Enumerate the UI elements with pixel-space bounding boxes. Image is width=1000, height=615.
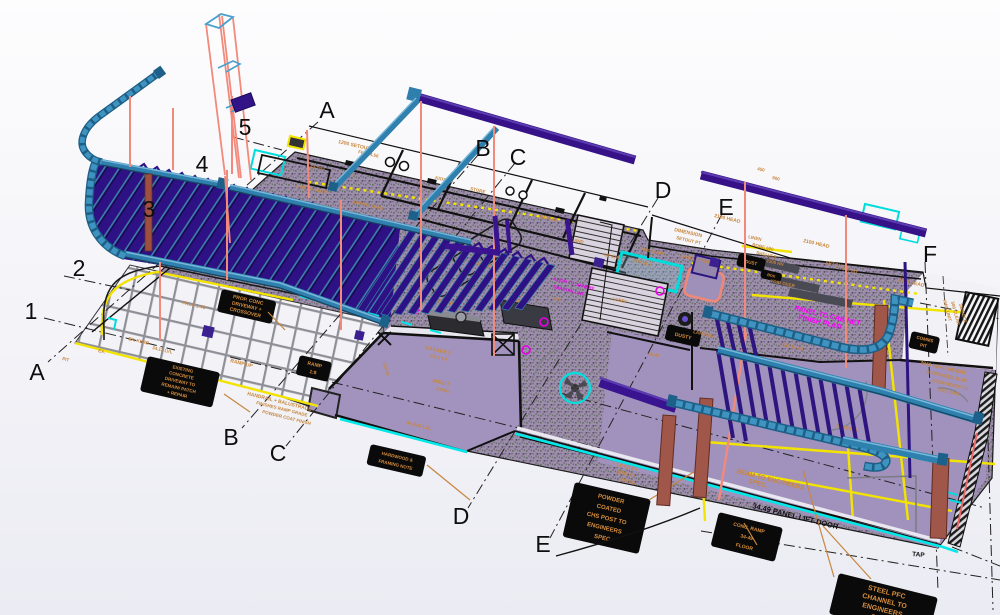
svg-text:3: 3 xyxy=(143,196,156,222)
svg-text:D: D xyxy=(453,503,470,529)
svg-text:TAP: TAP xyxy=(912,551,926,559)
svg-text:B: B xyxy=(475,135,490,161)
svg-text:A: A xyxy=(29,359,45,385)
svg-text:2: 2 xyxy=(73,255,86,281)
svg-text:E: E xyxy=(535,531,550,557)
svg-text:4: 4 xyxy=(196,151,209,177)
svg-text:C: C xyxy=(510,144,527,170)
svg-text:A: A xyxy=(319,97,335,123)
svg-text:B: B xyxy=(223,424,238,450)
svg-text:C: C xyxy=(270,440,287,466)
svg-text:F: F xyxy=(923,241,937,267)
svg-text:1: 1 xyxy=(25,298,38,324)
svg-text:5: 5 xyxy=(239,114,252,140)
svg-text:E: E xyxy=(718,194,733,220)
svg-text:D: D xyxy=(655,177,672,203)
